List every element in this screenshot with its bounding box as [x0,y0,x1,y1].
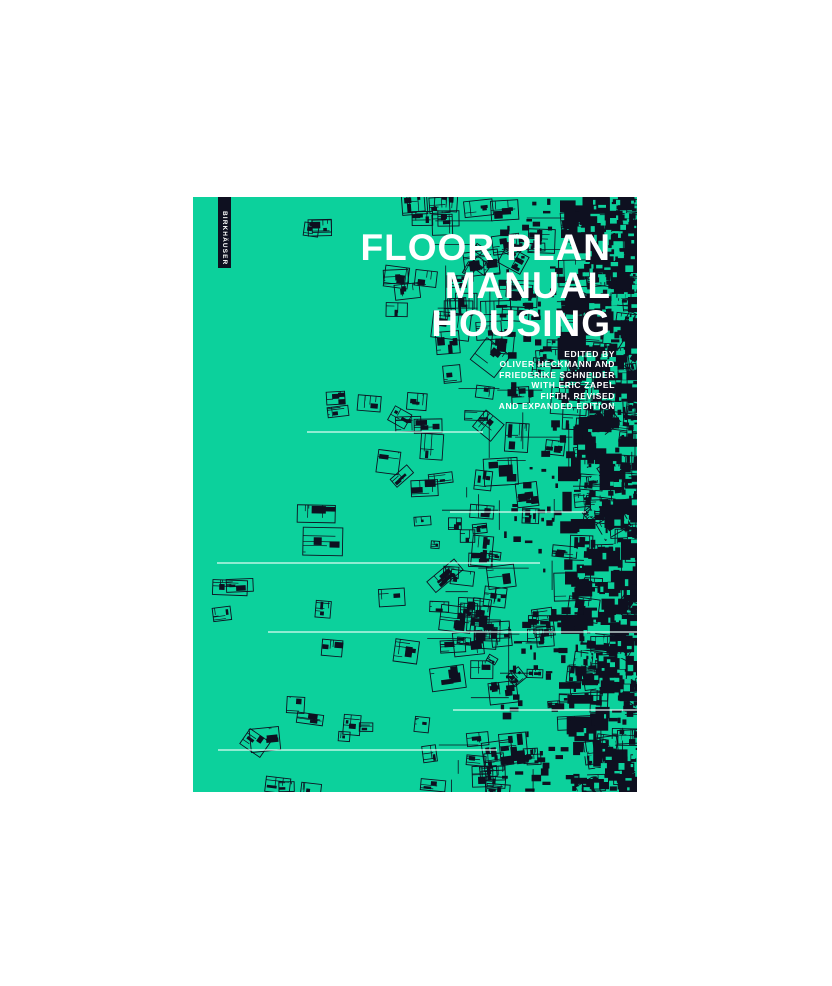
book-cover: BIRKHÄUSER FLOOR PLAN MANUAL HOUSING EDI… [193,197,637,792]
credits-line-6: AND EXPANDED EDITION [499,401,615,411]
publisher-spine-badge: BIRKHÄUSER [218,197,231,268]
page: BIRKHÄUSER FLOOR PLAN MANUAL HOUSING EDI… [0,0,832,986]
title-line-3: HOUSING [361,305,611,343]
title-line-1: FLOOR PLAN [361,229,611,267]
edition-credits: EDITED BY OLIVER HECKMANN AND FRIEDERIKE… [499,349,615,411]
publisher-name: BIRKHÄUSER [218,211,231,265]
book-title: FLOOR PLAN MANUAL HOUSING [361,229,611,343]
credits-line-3: FRIEDERIKE SCHNEIDER [499,370,615,380]
credits-line-4: WITH ERIC ZAPEL [499,380,615,390]
credits-line-2: OLIVER HECKMANN AND [499,359,615,369]
credits-line-1: EDITED BY [499,349,615,359]
title-line-2: MANUAL [361,267,611,305]
credits-line-5: FIFTH, REVISED [499,391,615,401]
